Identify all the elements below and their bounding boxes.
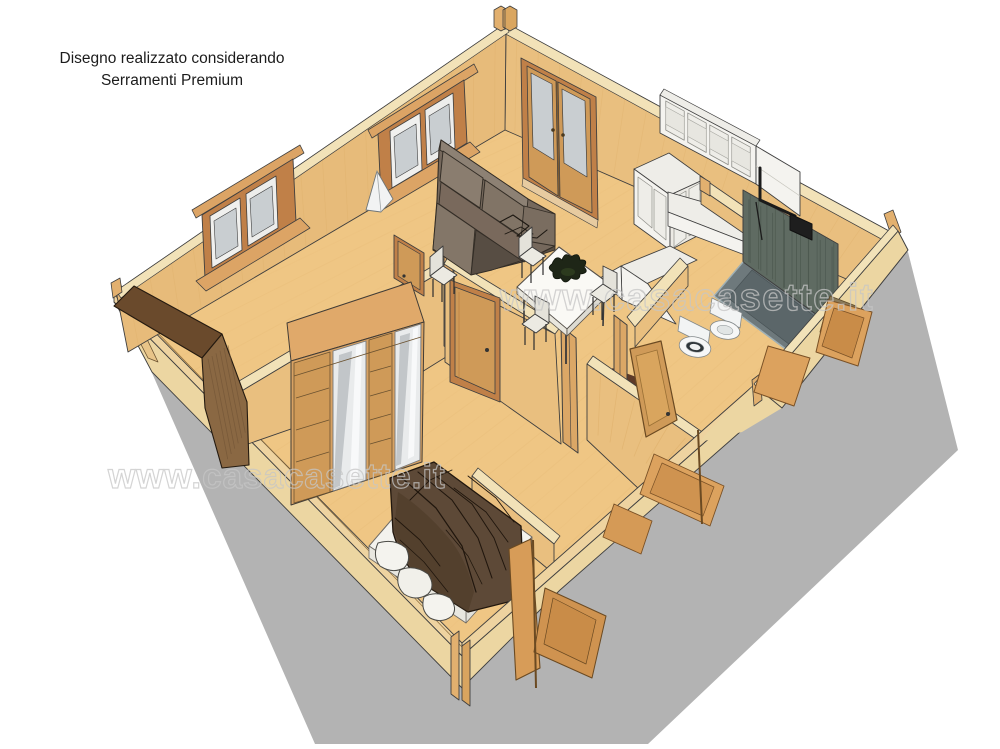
svg-text:www.casacasette.it: www.casacasette.it [499,277,874,319]
svg-text:Disegno realizzato considerand: Disegno realizzato considerando [60,50,285,67]
svg-text:Serramenti Premium: Serramenti Premium [101,72,243,89]
svg-text:www.casacasette.it: www.casacasette.it [107,457,446,496]
